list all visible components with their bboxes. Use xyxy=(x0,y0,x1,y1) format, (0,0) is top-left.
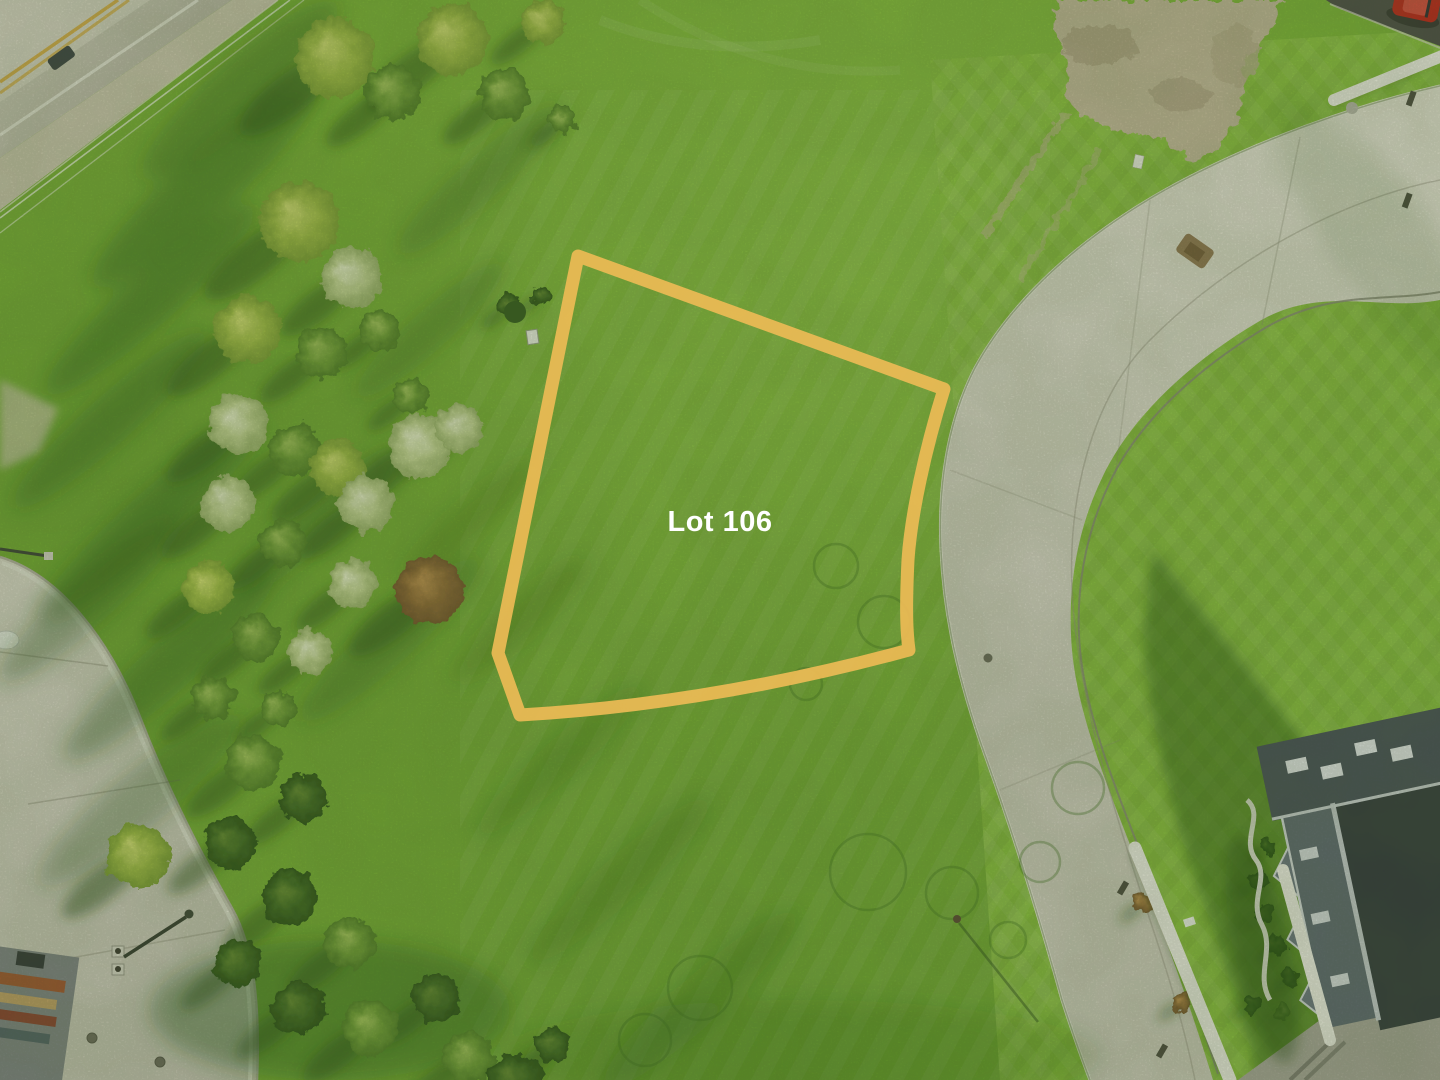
lot-label: Lot 106 xyxy=(667,506,772,538)
aerial-photo: Lot 106 xyxy=(0,0,1440,1080)
aerial-scene: Lot 106 xyxy=(0,0,1440,1080)
fine-noise-overlay xyxy=(0,0,1440,1080)
